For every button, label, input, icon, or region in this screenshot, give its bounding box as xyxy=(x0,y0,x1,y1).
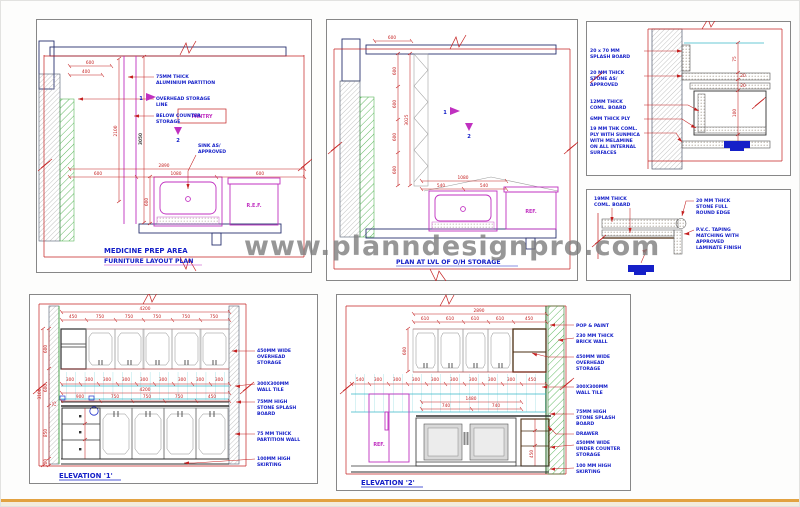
bottom-band xyxy=(1,502,800,507)
dim-label: 600 xyxy=(388,35,396,41)
annotation: ROUND EDGE xyxy=(696,210,730,216)
annotation: WITH MELAMINE xyxy=(590,138,633,144)
dim-label: 600 xyxy=(392,100,398,108)
annotation: 6MM THICK PLY xyxy=(590,116,631,122)
dim-label: 2100 xyxy=(113,125,119,136)
annotation: SINK AS/ xyxy=(198,143,221,149)
dim-label: 600 xyxy=(94,171,102,177)
watermark-text: www.planndesignpro.com xyxy=(244,231,660,262)
detail1-drawing: 75 20 20 100 20 20 x 70 MM SPLASH BOARD … xyxy=(586,21,791,176)
annotation: SKIRTING xyxy=(257,462,282,468)
dim-label: 740 xyxy=(442,403,450,409)
annotation: 100 MM HIGH xyxy=(576,463,611,469)
dim-label: 750 xyxy=(111,394,119,400)
annotation: STONE FULL xyxy=(696,204,728,210)
annotation: BRICK WALL xyxy=(576,339,608,345)
dim-label: 3050 xyxy=(138,133,144,145)
annotation: LAMINATE FINISH xyxy=(696,245,741,251)
annotation: LINE xyxy=(156,102,168,108)
annotation: POP & PAINT xyxy=(576,323,610,329)
annotation: 450MM WIDE xyxy=(257,348,291,354)
annotation: OVERHEAD STORAGE xyxy=(156,96,210,102)
dim-label: 600 xyxy=(144,198,150,206)
dim-label: 300 xyxy=(103,377,111,383)
annotation: SKIRTING xyxy=(576,469,601,475)
dim-label: 600 xyxy=(86,60,94,66)
annotation: P.V.C. TAPING xyxy=(696,227,731,233)
cad-sheet: PANTRY R.E.F. 600 400 2100 3050 2890 600 xyxy=(0,0,800,507)
dim-label: 540 xyxy=(356,377,364,383)
annotation: 20 MM THICK xyxy=(696,198,731,204)
dim-label: 1480 xyxy=(466,396,477,402)
plan1-title-line1: MEDICINE PREP AREA xyxy=(104,247,188,255)
dim-label: 1080 xyxy=(458,175,469,181)
dim-label: 900 xyxy=(76,394,84,400)
annotation: STONE SPLASH xyxy=(257,405,296,411)
dim-label: 100 xyxy=(43,459,49,467)
dim-label: 20 xyxy=(740,83,746,89)
dim-label: 20 xyxy=(740,73,746,79)
dim-label: 750 xyxy=(175,394,183,400)
annotation: OVERHEAD xyxy=(576,360,605,366)
dim-label: 4200 xyxy=(140,306,151,312)
annotation: APPROVED xyxy=(696,239,724,245)
annotation: MATCHING WITH xyxy=(696,233,739,239)
annotation: PARTITION WALL xyxy=(257,437,300,443)
dim-label: 300 xyxy=(507,377,515,383)
dim-label: 600 xyxy=(43,384,49,392)
annotation: OVERHEAD xyxy=(257,354,286,360)
dim-label: 600 xyxy=(392,67,398,75)
dim-label: 540 xyxy=(480,183,488,189)
dim-label: 75 xyxy=(52,401,58,407)
annotation: 300X300MM xyxy=(257,381,289,387)
annotation: COML. BOARD xyxy=(594,202,630,208)
dim-label: 3100 xyxy=(37,388,43,399)
dim-label: 750 xyxy=(125,314,133,320)
section-marker-1: 1 xyxy=(139,96,143,102)
dim-label: 300 xyxy=(66,377,74,383)
dim-label: 600 xyxy=(402,347,408,355)
annotation: WALL TILE xyxy=(257,387,284,393)
annotation: ON ALL INTERNAL xyxy=(590,144,636,150)
annotation: 450MM WIDE xyxy=(576,354,610,360)
plan1-title-line2: FURNITURE LAYOUT PLAN xyxy=(104,258,193,265)
annotation: BOARD xyxy=(257,411,275,417)
annotation: 20 MM THICK xyxy=(590,70,625,76)
annotation: 20 x 70 MM xyxy=(590,48,620,54)
annotation: APPROVED xyxy=(590,82,618,88)
annotation: 100MM HIGH xyxy=(257,456,291,462)
elev1-drawing: 4200 450 750 750 750 750 750 300 300 300… xyxy=(29,294,318,484)
annotation: PLY WITH SUNMICA xyxy=(590,132,640,138)
dim-label: 610 xyxy=(496,316,504,322)
elev2-title: ELEVATION '2' xyxy=(361,479,415,487)
dim-label: 300 xyxy=(140,377,148,383)
annotation: 75MM HIGH xyxy=(576,409,606,415)
dim-label: 300 xyxy=(374,377,382,383)
dim-label: 300 xyxy=(431,377,439,383)
dim-label: 450 xyxy=(529,450,535,458)
dim-label: 300 xyxy=(215,377,223,383)
dim-label: 450 xyxy=(208,394,216,400)
ref-label: R.E.F. xyxy=(246,203,261,209)
annotation: 19 MM THK COML. xyxy=(590,126,638,132)
dim-label: 400 xyxy=(82,69,90,75)
panel-elev2: 2890 610 610 610 610 450 600 540 300 300… xyxy=(336,294,631,491)
annotation: UNDER COUNTER xyxy=(576,446,621,452)
dim-label: 610 xyxy=(471,316,479,322)
dim-label: 75 xyxy=(732,56,738,62)
annotation: STONE AS/ xyxy=(590,76,618,82)
dim-label: 450 xyxy=(525,316,533,322)
annotation: 75 MM THICK xyxy=(257,431,292,437)
panel-title: ELEVATION '1' xyxy=(59,472,121,480)
dim-label: 600 xyxy=(392,166,398,174)
ref-label: REF. xyxy=(373,442,385,448)
annotation: COML. BOARD xyxy=(590,105,626,111)
dim-label: 300 xyxy=(469,377,477,383)
dim-label: 300 xyxy=(488,377,496,383)
annotation: 75MM THICK xyxy=(156,74,189,80)
dim-label: 300 xyxy=(196,377,204,383)
panel-title: ELEVATION '2' xyxy=(361,479,423,487)
annotation: WALL TILE xyxy=(576,390,603,396)
dim-label: 300 xyxy=(412,377,420,383)
annotation: SURFACES xyxy=(590,150,617,156)
dim-label: 610 xyxy=(446,316,454,322)
dim-label: 300 xyxy=(178,377,186,383)
section-marker-1: 1 xyxy=(443,110,447,116)
annotation: STORAGE xyxy=(576,452,600,458)
dim-label: 750 xyxy=(210,314,218,320)
dim-label: 610 xyxy=(421,316,429,322)
dim-label: 750 xyxy=(182,314,190,320)
annotation: STORAGE xyxy=(576,366,600,372)
dim-label: 540 xyxy=(437,183,445,189)
section-marker-2: 2 xyxy=(467,134,471,140)
dim-label: 750 xyxy=(96,314,104,320)
panel-elev1: 4200 450 750 750 750 750 750 300 300 300… xyxy=(29,294,318,484)
dim-label: 300 xyxy=(122,377,130,383)
panel-border xyxy=(587,22,791,176)
dim-label: 450 xyxy=(69,314,77,320)
dim-label: 600 xyxy=(43,345,49,353)
dim-label: 850 xyxy=(43,429,49,437)
dim-label: 300 xyxy=(85,377,93,383)
dim-label: 300 xyxy=(159,377,167,383)
annotation: STONE SPLASH xyxy=(576,415,615,421)
dim-label: 740 xyxy=(492,403,500,409)
elev1-title: ELEVATION '1' xyxy=(59,472,113,480)
dim-label: 750 xyxy=(153,314,161,320)
annotation: 12MM THICK xyxy=(590,99,623,105)
annotation: BOARD xyxy=(576,421,594,427)
dim-label: 300 xyxy=(393,377,401,383)
annotation: 19MM THICK xyxy=(594,196,627,202)
annotation: DRAWER xyxy=(576,431,599,437)
section-marker-2: 2 xyxy=(176,138,180,144)
dim-label: 600 xyxy=(392,133,398,141)
elev2-drawing: 2890 610 610 610 610 450 600 540 300 300… xyxy=(336,294,631,491)
dim-label: 1080 xyxy=(171,171,182,177)
annotation: APPROVED xyxy=(198,149,226,155)
ref-label: REF. xyxy=(525,209,537,215)
annotation: SPLASH BOARD xyxy=(590,54,630,60)
annotation: STORAGE xyxy=(156,119,180,125)
dim-label: 2890 xyxy=(474,308,485,314)
annotation: STORAGE xyxy=(257,360,281,366)
dim-label: 450 xyxy=(528,377,536,383)
dim-label: 750 xyxy=(143,394,151,400)
annotation: BELOW COUNTER xyxy=(156,113,201,119)
annotation: ALUMINIUM PARTITION xyxy=(156,80,215,86)
annotation: 450MM WIDE xyxy=(576,440,610,446)
dim-label: 3025 xyxy=(404,114,410,125)
annotation: 300X300MM xyxy=(576,384,608,390)
dim-label: 100 xyxy=(732,109,738,117)
annotation: 230 MM THICK xyxy=(576,333,614,339)
dim-label: 2890 xyxy=(159,163,170,169)
dim-label: 4200 xyxy=(140,387,151,393)
dim-label: 300 xyxy=(450,377,458,383)
annotation: 75MM HIGH xyxy=(257,399,287,405)
panel-detail1: 75 20 20 100 20 20 x 70 MM SPLASH BOARD … xyxy=(586,21,791,176)
dim-label: 600 xyxy=(256,171,264,177)
